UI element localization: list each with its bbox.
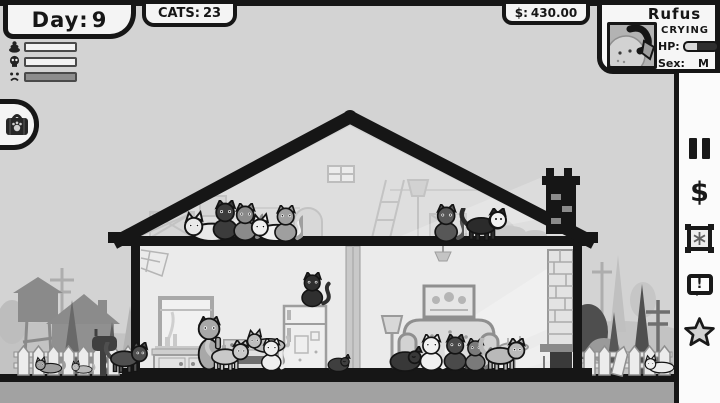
money-value: 430.00 bbox=[531, 6, 577, 20]
alert-glyph: ! bbox=[697, 277, 703, 292]
hp-bar bbox=[683, 41, 719, 52]
picture-frame bbox=[424, 286, 474, 317]
poop-meter bbox=[24, 42, 77, 52]
money-icon: $ bbox=[690, 179, 709, 206]
hp-label: HP: bbox=[658, 40, 680, 53]
selected-cat-panel[interactable]: Rufus Crying HP: Sex: M bbox=[597, 0, 720, 74]
attic-floor bbox=[122, 236, 592, 246]
house-floor bbox=[122, 368, 592, 378]
meter-row bbox=[8, 70, 77, 83]
cat-status: Crying bbox=[657, 25, 713, 36]
cat-face-portrait-icon bbox=[607, 22, 657, 69]
day-badge: Day: 9 bbox=[3, 0, 136, 39]
pet-carrier-icon bbox=[4, 112, 30, 137]
meter-row bbox=[8, 40, 77, 53]
cats-label: CATS: bbox=[158, 6, 200, 21]
money-badge: $: 430.00 bbox=[502, 0, 590, 25]
hp-fill bbox=[685, 43, 697, 50]
money-button[interactable]: $ bbox=[679, 173, 720, 211]
cat-name: Rufus bbox=[636, 5, 713, 23]
game-screen: Day: 9 CATS: 23 $: 430.00 Rufus Crying H… bbox=[0, 0, 720, 403]
right-toolbar: $ ! bbox=[674, 73, 720, 403]
need-meters bbox=[8, 40, 77, 83]
house bbox=[108, 110, 598, 378]
chimney bbox=[542, 168, 580, 234]
poop-icon bbox=[8, 40, 21, 53]
frame-button[interactable] bbox=[679, 219, 720, 257]
ground bbox=[0, 374, 720, 403]
alert-button[interactable]: ! bbox=[679, 265, 720, 303]
star-button[interactable] bbox=[679, 313, 720, 351]
alert-bubble-icon: ! bbox=[687, 274, 713, 295]
refrigerator bbox=[284, 306, 326, 374]
sex-label: Sex: bbox=[658, 57, 685, 70]
day-label: Day: bbox=[32, 8, 89, 32]
cats-value: 23 bbox=[203, 6, 221, 21]
death-meter bbox=[24, 57, 77, 67]
skull-icon bbox=[8, 55, 21, 68]
tree-far bbox=[610, 255, 626, 332]
cats-badge: CATS: 23 bbox=[142, 0, 237, 27]
sad-face-icon bbox=[8, 70, 21, 83]
mood-meter bbox=[24, 72, 77, 82]
sex-value: M bbox=[698, 57, 709, 70]
star-icon bbox=[684, 317, 715, 347]
pause-button[interactable] bbox=[679, 129, 720, 167]
pause-icon bbox=[689, 138, 710, 159]
money-label: $: bbox=[515, 6, 528, 20]
frame-snowflake-icon bbox=[687, 226, 712, 251]
right-wall bbox=[573, 238, 582, 376]
meter-row bbox=[8, 55, 77, 68]
day-value: 9 bbox=[92, 8, 108, 32]
